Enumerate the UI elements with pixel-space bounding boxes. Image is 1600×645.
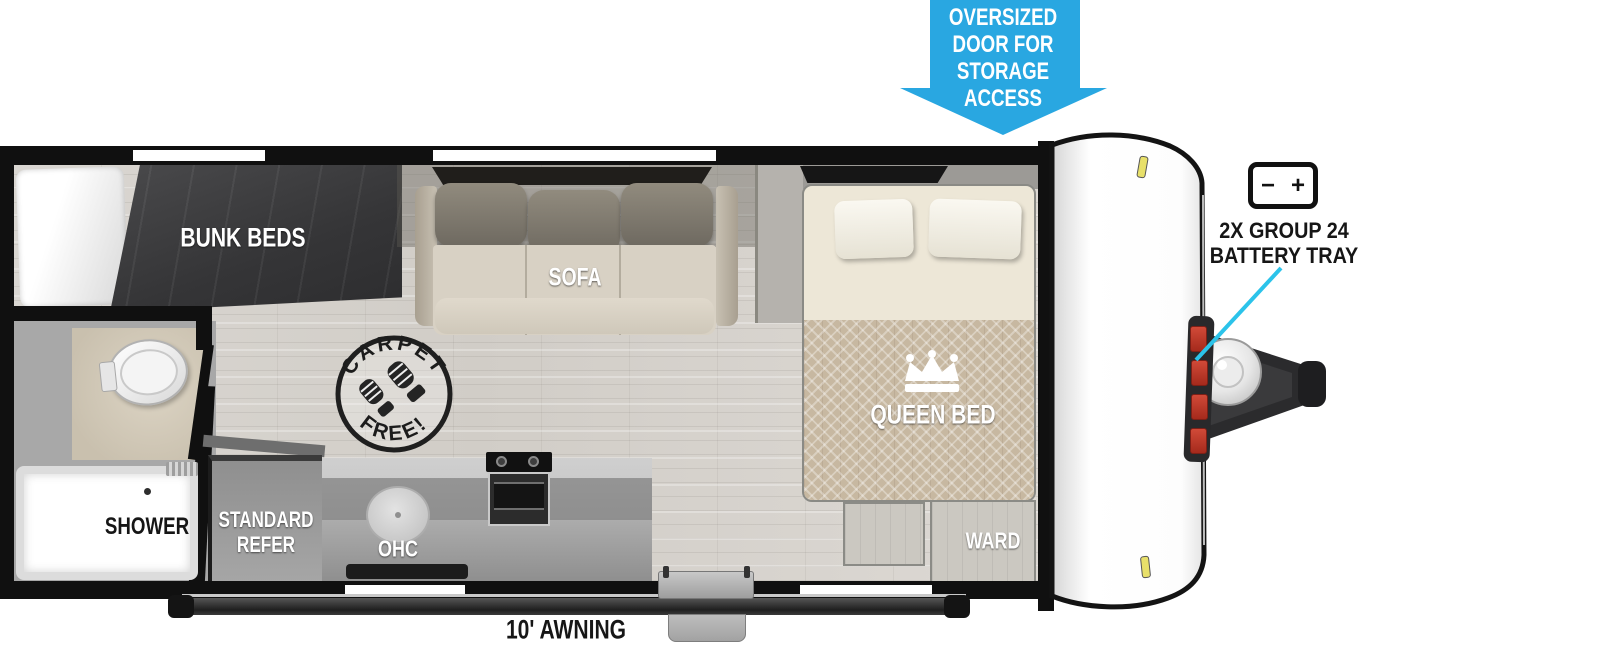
ward-label: WARD	[966, 530, 1021, 553]
storage-callout-line3: STORAGE	[957, 60, 1049, 84]
shower-faucet	[166, 462, 198, 476]
entry-landing	[658, 571, 754, 599]
battery-minus: −	[1261, 172, 1275, 200]
kitchen-floor-mat	[346, 564, 468, 579]
rear-wall	[0, 146, 14, 599]
awning-roller	[178, 598, 968, 615]
bunk-bedding	[16, 166, 129, 308]
battery-icon: − +	[1248, 162, 1318, 209]
crown-icon	[900, 350, 964, 396]
sink-drain	[395, 512, 401, 518]
battery-cell	[1190, 428, 1207, 454]
battery-pointer-line	[1180, 260, 1300, 370]
refer-label-line1: STANDARD	[218, 509, 313, 531]
carpet-free-stamp: CARPET FREE!	[330, 330, 458, 458]
awning-rail-highlight	[182, 594, 966, 597]
storage-callout-line4: ACCESS	[964, 87, 1042, 111]
stove	[486, 452, 552, 528]
queen-bed-label: QUEEN BED	[870, 402, 995, 429]
battery-label-line1: 2X GROUP 24	[1219, 220, 1349, 242]
awning-end-cap-left	[168, 595, 194, 618]
shower-drain	[144, 488, 151, 495]
sofa	[413, 180, 740, 343]
battery-cell	[1191, 394, 1208, 420]
nightstand	[843, 502, 925, 566]
bed-ohc-cabinet	[800, 166, 948, 183]
refer-label-line2: REFER	[237, 534, 295, 556]
entry-hinge-right	[744, 566, 750, 578]
kitchen-ohc-label: OHC	[378, 538, 418, 561]
awning-end-cap-right	[944, 595, 970, 618]
battery-plus: +	[1291, 172, 1305, 200]
entry-step	[668, 614, 746, 642]
awning-label: 10' AWNING	[506, 617, 626, 644]
entry-hinge-left	[663, 566, 669, 578]
shower-label: SHOWER	[105, 515, 189, 539]
queen-bed	[802, 184, 1036, 502]
storage-callout-line2: DOOR FOR	[953, 33, 1054, 57]
bath-wall-horizontal	[10, 306, 208, 321]
bedroom-divider-wall	[755, 163, 803, 323]
rv-floorplan-diagram: BUNK BEDS SHOWER STANDARD REFER OHC OHC	[0, 0, 1600, 645]
battery-label-line2: BATTERY TRAY	[1210, 245, 1359, 267]
sofa-label: SOFA	[548, 266, 601, 291]
bunk-beds-label: BUNK BEDS	[180, 225, 305, 252]
toilet	[95, 336, 189, 411]
bunk-window	[133, 150, 265, 161]
storage-callout-line1: OVERSIZED	[949, 6, 1057, 30]
sofa-window	[433, 150, 716, 161]
